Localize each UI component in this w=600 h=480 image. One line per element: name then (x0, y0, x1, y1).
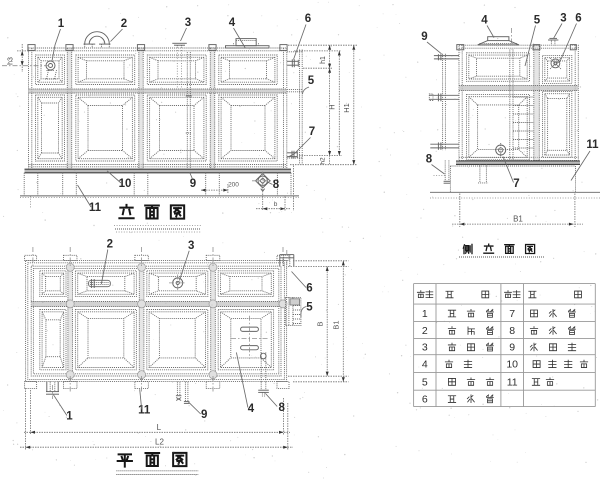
svg-text:8: 8 (273, 179, 280, 191)
svg-text:9: 9 (201, 409, 207, 421)
svg-text:6: 6 (306, 282, 312, 294)
svg-text:4: 4 (481, 15, 488, 27)
svg-text:10: 10 (506, 359, 518, 371)
svg-text:L2: L2 (155, 438, 164, 447)
svg-text:8: 8 (426, 154, 433, 166)
svg-text:3: 3 (188, 240, 194, 252)
svg-text:6: 6 (305, 13, 311, 25)
svg-text:6: 6 (575, 13, 581, 25)
svg-text:7: 7 (509, 308, 515, 320)
svg-text:2: 2 (121, 18, 127, 30)
svg-text:B1: B1 (513, 215, 523, 224)
svg-text:9: 9 (190, 178, 196, 190)
svg-text:11: 11 (507, 376, 518, 388)
svg-text:5: 5 (534, 15, 541, 27)
svg-text:b: b (274, 201, 278, 208)
svg-text:7: 7 (513, 178, 519, 190)
svg-text:2: 2 (422, 325, 428, 337)
svg-text:9: 9 (421, 31, 427, 43)
svg-text:8: 8 (278, 402, 285, 414)
svg-text:9: 9 (509, 342, 515, 354)
svg-text:8: 8 (509, 325, 515, 337)
svg-text:B1: B1 (332, 320, 341, 329)
svg-text:11: 11 (586, 139, 599, 151)
svg-text:4: 4 (248, 403, 255, 415)
svg-text:1: 1 (66, 411, 73, 423)
svg-text:L: L (157, 423, 162, 432)
svg-text:7: 7 (309, 126, 315, 138)
svg-text:h3: h3 (8, 57, 15, 65)
svg-text:5: 5 (422, 376, 428, 388)
svg-text:1: 1 (422, 308, 428, 320)
svg-text:H1: H1 (342, 103, 351, 113)
svg-text:5: 5 (308, 75, 315, 87)
svg-text:6: 6 (422, 393, 428, 405)
svg-text:11: 11 (89, 202, 102, 214)
svg-text:h2: h2 (320, 157, 327, 165)
svg-text:3: 3 (185, 17, 191, 29)
svg-text:5: 5 (306, 301, 313, 313)
svg-text:3: 3 (560, 13, 566, 25)
svg-text:4: 4 (229, 17, 236, 29)
svg-text:B: B (316, 321, 325, 326)
svg-text:2: 2 (107, 239, 113, 251)
svg-text:10: 10 (119, 178, 132, 190)
svg-text:11: 11 (138, 405, 151, 417)
svg-text:4: 4 (422, 359, 428, 371)
svg-text:H: H (328, 104, 337, 109)
svg-text:h1: h1 (320, 56, 327, 64)
svg-text:200: 200 (228, 182, 239, 189)
svg-text:3: 3 (422, 342, 428, 354)
svg-text:1: 1 (58, 18, 65, 30)
